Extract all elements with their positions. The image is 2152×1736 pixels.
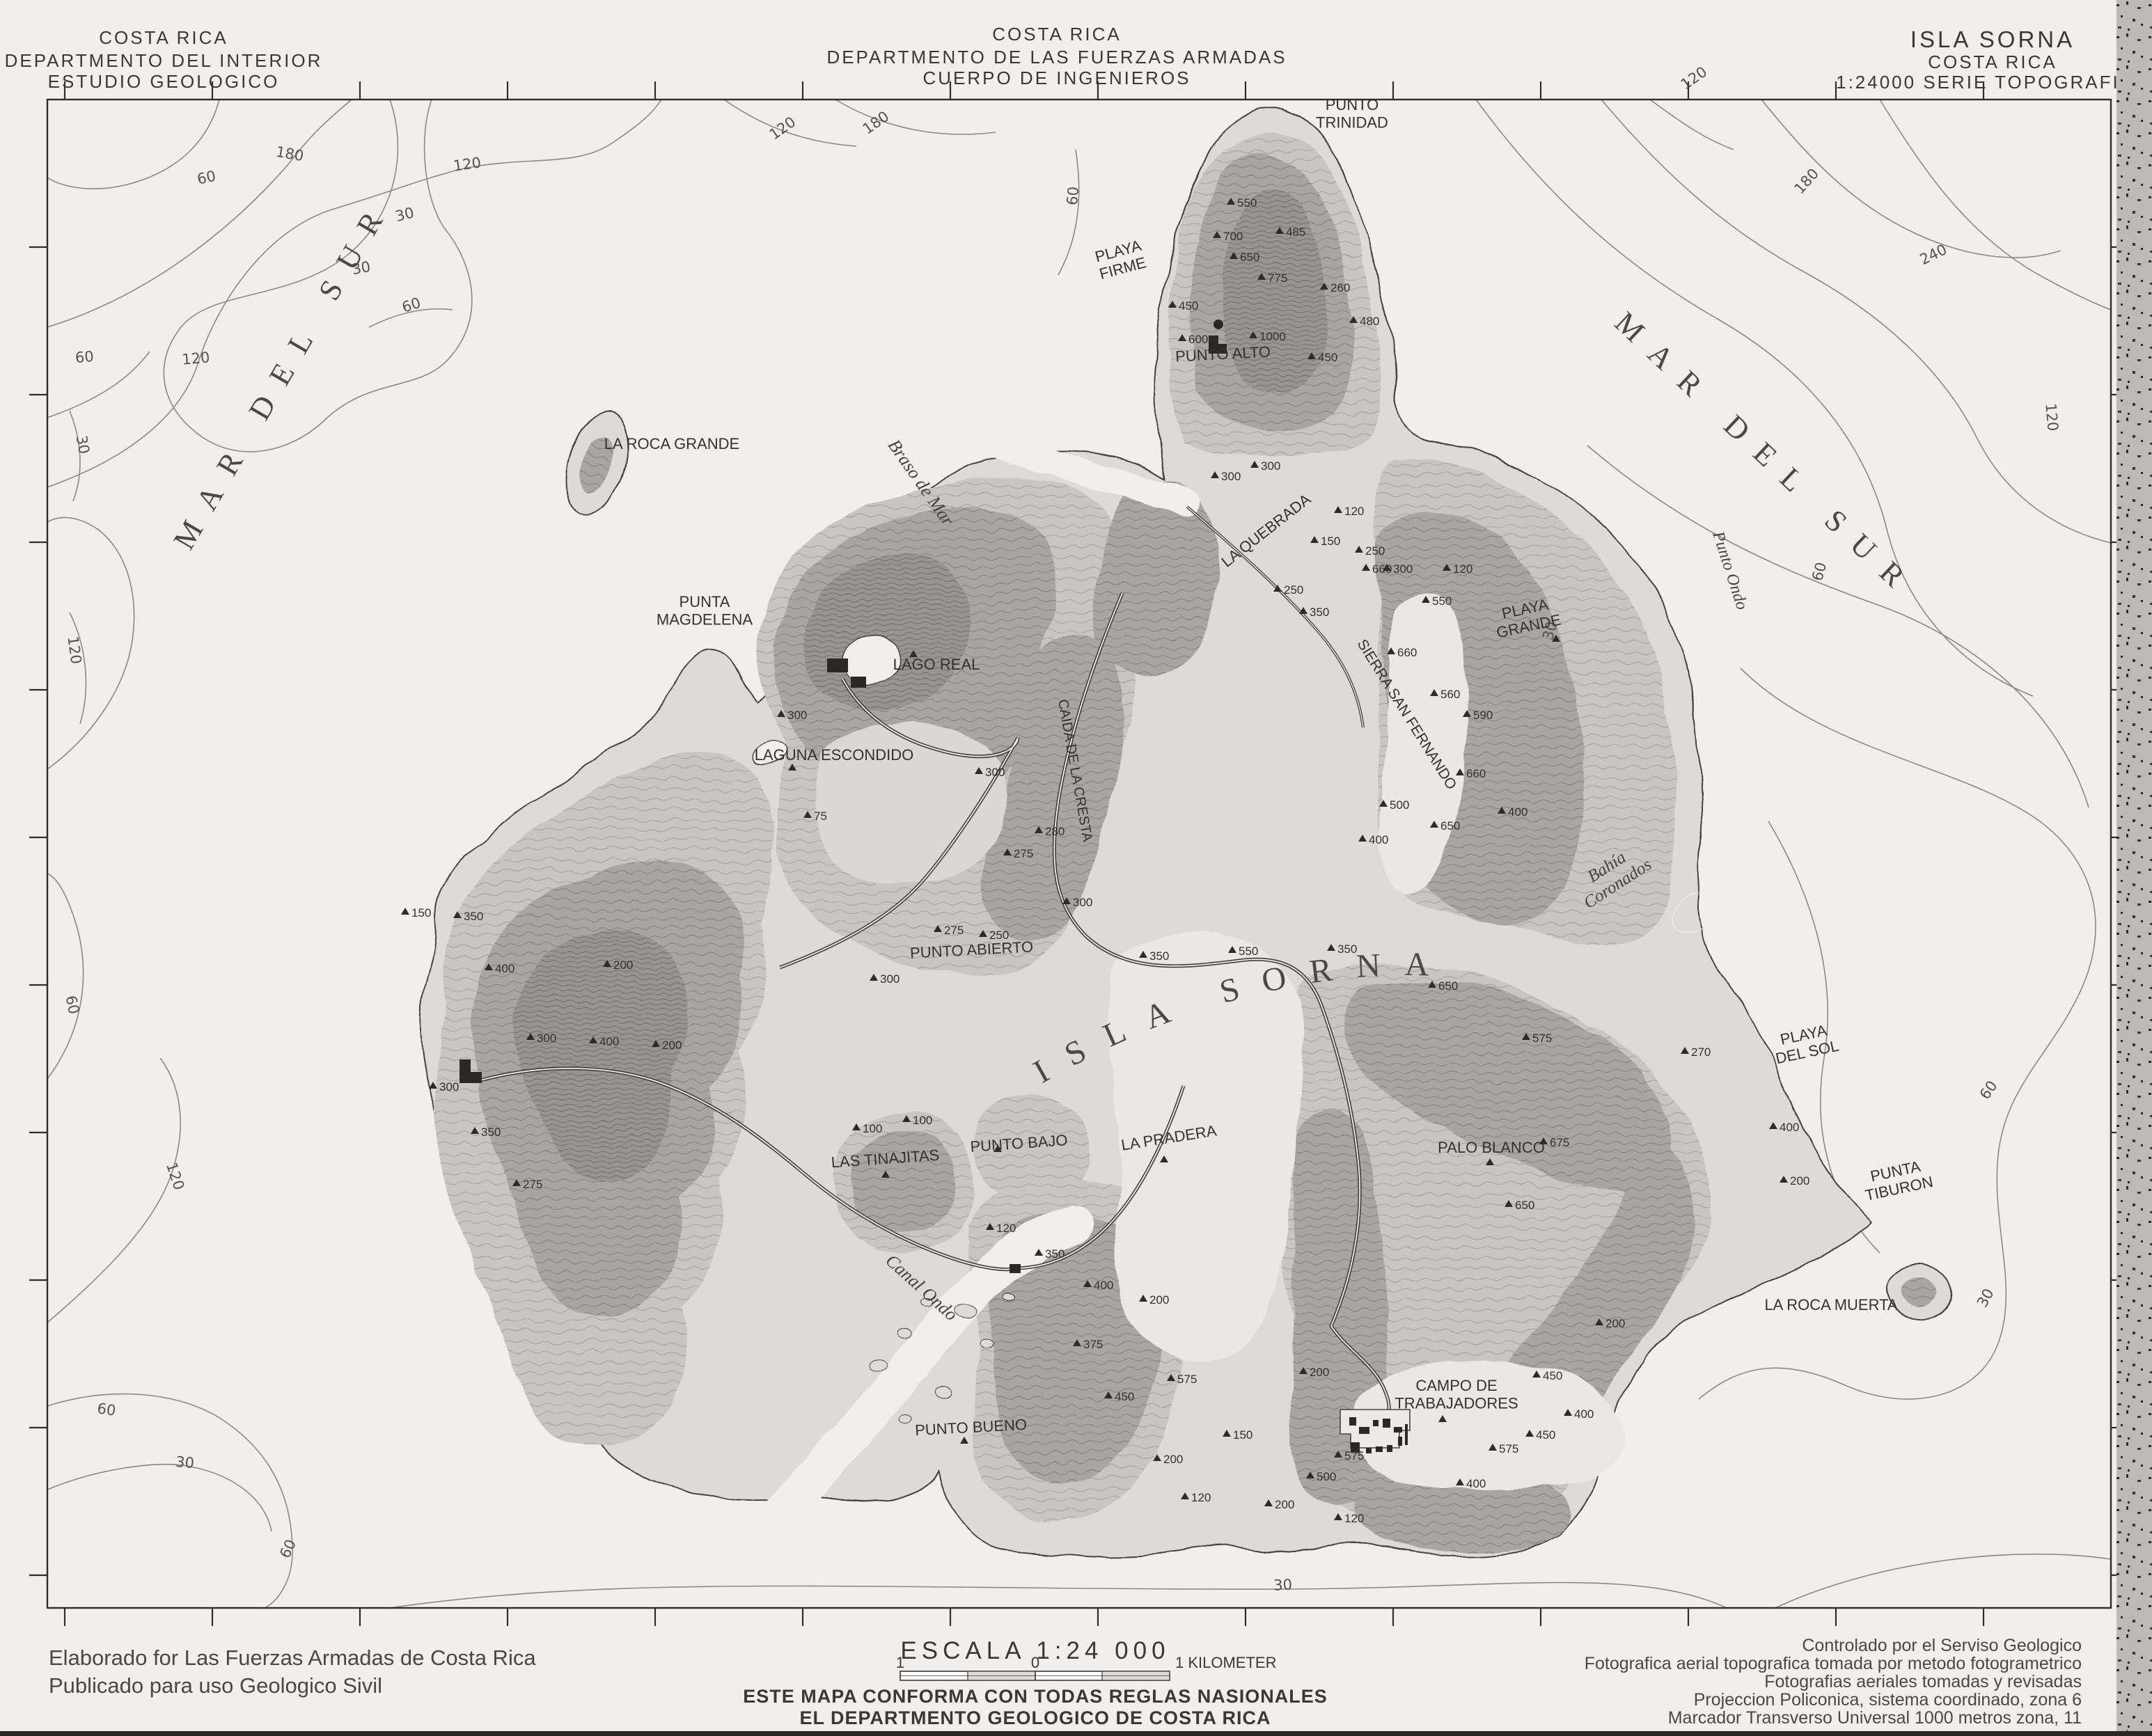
place-label-punto-ondo: Punto Ondo: [1709, 528, 1751, 612]
svg-text:300: 300: [985, 766, 1005, 779]
spot-elevation: 150: [401, 906, 431, 920]
place-label-laguna-escondido: LAGUNA ESCONDIDO: [755, 746, 914, 764]
svg-text:550: 550: [1239, 945, 1258, 958]
svg-text:200: 200: [1163, 1453, 1183, 1466]
scale-bar-left-label: 1: [896, 1654, 904, 1671]
svg-text:275: 275: [523, 1178, 542, 1191]
svg-text:775: 775: [1268, 271, 1287, 285]
depth-label-60-16: 60: [276, 1537, 299, 1561]
depth-label-30-10: 30: [73, 434, 93, 455]
depth-label-180-20: 180: [1791, 165, 1822, 197]
depth-label-120-26: 120: [2042, 402, 2061, 432]
depth-label-30-18: 30: [1273, 1576, 1293, 1593]
svg-text:450: 450: [1115, 1390, 1134, 1403]
svg-text:300: 300: [787, 709, 807, 722]
svg-text:150: 150: [1233, 1428, 1252, 1442]
svg-text:590: 590: [1473, 709, 1493, 722]
svg-text:100: 100: [913, 1114, 932, 1127]
depth-label-60-14: 60: [96, 1400, 117, 1419]
depth-label-120-19: 120: [1678, 63, 1711, 93]
scan-edge-shadow: [0, 1731, 2152, 1736]
header-left-line1: COSTA RICA: [99, 27, 228, 48]
svg-text:600: 600: [1188, 333, 1208, 346]
depth-label-30-25: 30: [1974, 1286, 1997, 1310]
svg-text:700: 700: [1223, 230, 1243, 243]
depth-label-60-1: 60: [196, 168, 217, 188]
place-label-mar-del-sur-east: MAR DEL SUR: [1608, 305, 1924, 606]
svg-text:660: 660: [1466, 767, 1486, 780]
svg-text:250: 250: [1365, 544, 1385, 558]
scale-bar-right-label: 1 KILOMETER: [1175, 1654, 1276, 1671]
svg-text:400: 400: [1466, 1477, 1486, 1490]
depth-label-120-5: 120: [767, 113, 799, 143]
header-center-line3: CUERPO DE INGENIEROS: [922, 68, 1191, 88]
svg-text:120: 120: [1191, 1491, 1211, 1504]
header-right-line2: COSTA RICA: [1928, 52, 2057, 72]
west-station-building: [460, 1059, 471, 1083]
svg-text:350: 350: [1149, 949, 1169, 963]
scale-bar-zero-label: 0: [1031, 1654, 1039, 1671]
svg-text:650: 650: [1240, 251, 1259, 264]
depth-label-60-12: 60: [62, 994, 82, 1016]
depth-label-60-9: 60: [74, 348, 95, 366]
svg-text:500: 500: [1317, 1470, 1336, 1483]
place-label-punta-magdelena: PUNTAMAGDELENA: [657, 593, 753, 628]
svg-text:400: 400: [495, 962, 515, 975]
credit-right-line5: Marcador Transverso Universal 1000 metro…: [1668, 1708, 2082, 1728]
place-label-playa-firme: PLAYAFIRME: [1093, 237, 1148, 283]
svg-text:485: 485: [1286, 226, 1305, 239]
svg-text:275: 275: [944, 924, 964, 937]
svg-text:675: 675: [1550, 1136, 1569, 1149]
svg-text:300: 300: [1261, 459, 1280, 473]
header-right-title: ISLA SORNA: [1910, 26, 2075, 52]
svg-text:270: 270: [1691, 1045, 1711, 1059]
svg-text:575: 575: [1344, 1449, 1364, 1462]
svg-text:350: 350: [464, 910, 483, 923]
svg-text:660: 660: [1372, 562, 1392, 576]
svg-text:550: 550: [1432, 594, 1452, 608]
svg-text:250: 250: [1284, 583, 1303, 597]
svg-text:350: 350: [481, 1126, 501, 1139]
svg-text:120: 120: [1453, 562, 1472, 576]
svg-text:450: 450: [1318, 351, 1337, 364]
credit-right-line3: Fotografias aeriales tomadas y revisadas: [1764, 1672, 2082, 1691]
islet-la-roca-grande: [555, 407, 638, 523]
depth-label-30-15: 30: [175, 1453, 195, 1471]
svg-text:75: 75: [814, 810, 827, 823]
canal-building: [1010, 1264, 1021, 1273]
header-right-line3: 1:24000 SERIE TOPOGRAFICA: [1836, 72, 2149, 93]
svg-text:200: 200: [613, 958, 633, 972]
lago-real-building-2: [851, 677, 866, 688]
svg-text:575: 575: [1499, 1442, 1518, 1455]
svg-text:450: 450: [1536, 1428, 1555, 1442]
svg-text:575: 575: [1177, 1373, 1197, 1386]
svg-text:260: 260: [1330, 281, 1350, 294]
svg-text:100: 100: [863, 1122, 882, 1135]
worker-village-compound: [1340, 1410, 1410, 1453]
mar-del-sur-east-text: MAR DEL SUR: [1608, 305, 1924, 606]
svg-text:200: 200: [1790, 1174, 1809, 1187]
svg-text:350: 350: [1310, 606, 1329, 619]
svg-text:300: 300: [439, 1080, 459, 1094]
credit-left-line2: Publicado para uso Geologico Sivil: [49, 1673, 382, 1698]
svg-text:550: 550: [1237, 196, 1257, 210]
svg-text:500: 500: [1390, 798, 1409, 812]
place-label-la-roca-muerta: LA ROCA MUERTA: [1764, 1296, 1897, 1313]
svg-text:300: 300: [537, 1032, 556, 1045]
credit-right-line4: Projeccion Policonica, sistema coordinad…: [1694, 1690, 2082, 1710]
depth-label-180-0: 180: [274, 143, 305, 165]
svg-text:200: 200: [1310, 1366, 1329, 1379]
svg-text:400: 400: [1094, 1279, 1113, 1292]
depth-label-60-7: 60: [1064, 186, 1082, 206]
header-center-line2: DEPARTMENTO DE LAS FUERZAS ARMADAS: [826, 47, 1287, 68]
svg-text:200: 200: [1149, 1293, 1169, 1307]
svg-text:660: 660: [1397, 646, 1417, 659]
map-sheet: 1806030301201201806012060301206012060306…: [0, 0, 2152, 1736]
svg-text:400: 400: [1508, 805, 1527, 819]
svg-text:120: 120: [1344, 505, 1364, 518]
svg-text:375: 375: [1083, 1338, 1103, 1351]
place-label-punta-tiburon: PUNTATIBURON: [1860, 1155, 1934, 1204]
lago-real-lake: [844, 634, 900, 684]
depth-label-120-8: 120: [181, 349, 210, 368]
svg-text:200: 200: [662, 1039, 682, 1052]
svg-text:350: 350: [1045, 1247, 1065, 1261]
svg-text:1000: 1000: [1259, 330, 1286, 343]
depth-label-120-4: 120: [453, 154, 482, 174]
scan-edge-speckle: [2116, 0, 2152, 1736]
svg-text:400: 400: [1574, 1407, 1594, 1421]
svg-text:480: 480: [1360, 315, 1379, 328]
place-label-punto-trinidad: PUNTOTRINIDAD: [1316, 96, 1388, 131]
depth-label-60-24: 60: [1977, 1078, 2001, 1103]
depth-label-180-6: 180: [860, 108, 893, 138]
svg-text:575: 575: [1532, 1032, 1552, 1045]
svg-text:400: 400: [1780, 1121, 1799, 1134]
header-left-line3: ESTUDIO GEOLOGICO: [48, 71, 280, 92]
depth-label-120-11: 120: [64, 636, 84, 665]
header-center-line1: COSTA RICA: [992, 24, 1122, 45]
svg-text:300: 300: [1393, 562, 1413, 576]
svg-text:120: 120: [996, 1222, 1016, 1235]
credit-right-line1: Controlado por el Serviso Geologico: [1802, 1636, 2082, 1655]
credit-left-line1: Elaborado for Las Fuerzas Armadas de Cos…: [49, 1646, 536, 1670]
svg-text:400: 400: [599, 1035, 619, 1048]
header-left-line2: DEPARTMENTO DEL INTERIOR: [5, 50, 323, 71]
place-label-lago-real: LAGO REAL: [893, 656, 980, 673]
island-relief: [421, 108, 1951, 1556]
place-label-palo-blanco: PALO BLANCO: [1438, 1139, 1545, 1156]
svg-text:560: 560: [1440, 688, 1460, 701]
svg-text:400: 400: [1369, 833, 1388, 846]
svg-text:275: 275: [1014, 847, 1033, 860]
topographic-map-svg: 1806030301201201806012060301206012060306…: [0, 0, 2152, 1736]
svg-text:450: 450: [1179, 299, 1198, 313]
peak-triangle-icon: [401, 908, 409, 915]
place-label-la-roca-grande: LA ROCA GRANDE: [604, 435, 739, 452]
depth-label-60-17: 60: [400, 294, 423, 316]
svg-text:200: 200: [1275, 1498, 1294, 1511]
conformance-note-line2: EL DEPARTMENTO GEOLOGICO DE COSTA RICA: [799, 1707, 1271, 1728]
lago-real-building-1: [827, 658, 848, 672]
svg-text:200: 200: [1605, 1317, 1625, 1330]
place-label-playa-del-sol: PLAYADEL SOL: [1770, 1020, 1841, 1067]
svg-text:650: 650: [1440, 819, 1460, 833]
svg-text:300: 300: [1073, 896, 1092, 909]
svg-text:150: 150: [1321, 535, 1340, 548]
svg-text:120: 120: [1344, 1512, 1364, 1525]
credit-right-line2: Fotografica aerial topografica tomada po…: [1585, 1654, 2082, 1673]
svg-text:300: 300: [1221, 470, 1241, 483]
svg-text:650: 650: [1515, 1199, 1534, 1212]
conformance-note-line1: ESTE MAPA CONFORMA CON TODAS REGLAS NASI…: [743, 1686, 1328, 1707]
svg-text:300: 300: [880, 972, 900, 986]
svg-text:280: 280: [1045, 825, 1065, 838]
depth-label-60-22: 60: [1809, 560, 1830, 583]
punto-alto-tank: [1214, 319, 1223, 329]
svg-text:450: 450: [1543, 1369, 1562, 1382]
svg-text:150: 150: [411, 906, 431, 920]
